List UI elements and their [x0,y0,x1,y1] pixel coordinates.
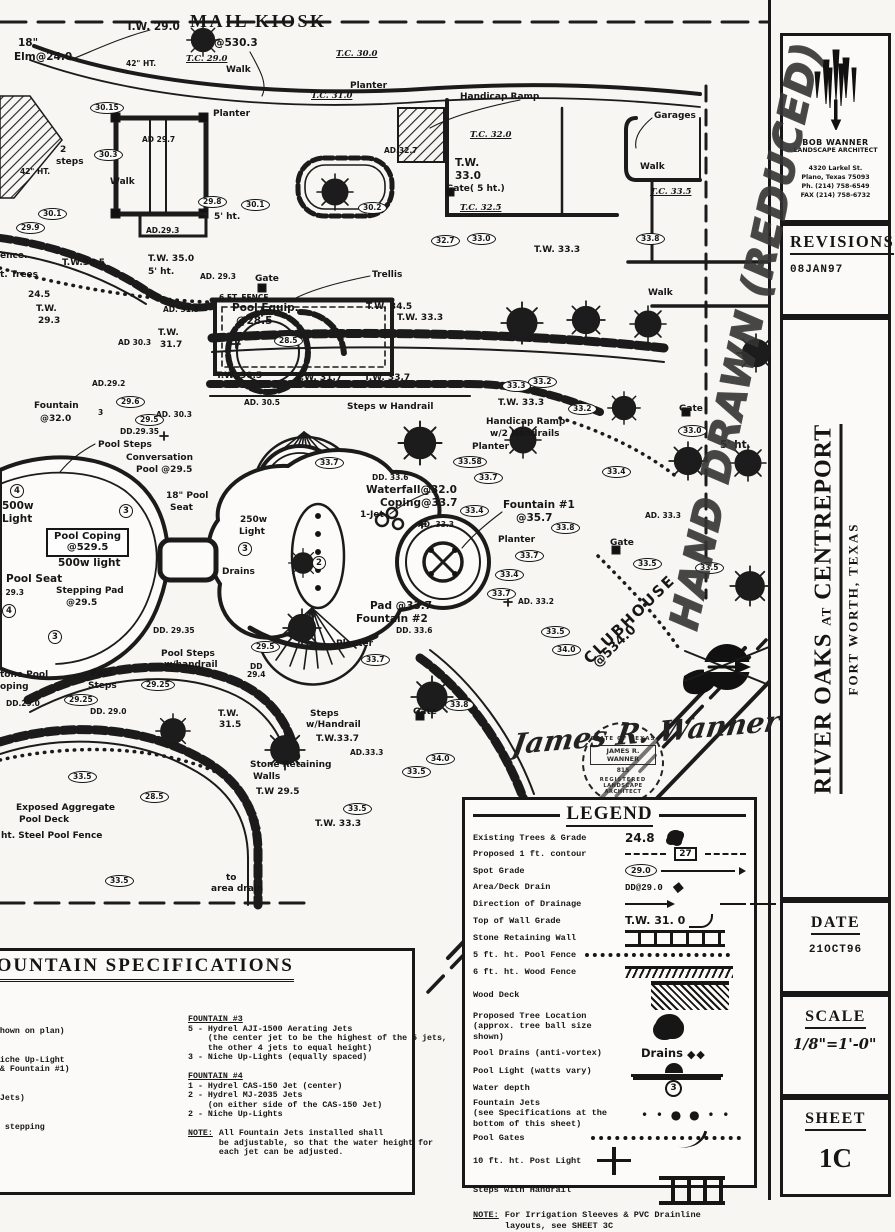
legend-item: Proposed 1 ft. contour27 [473,847,746,863]
legend-item-label: Pool Drains (anti-vortex) [473,1048,625,1059]
legend-item-label: Proposed 1 ft. contour [473,849,625,860]
legend-item-label: Top of Wall Grade [473,916,625,927]
legend-item-label: Area/Deck Drain [473,882,625,893]
legend-item-label: Steps with Handrail [473,1185,625,1196]
legend-item: Direction of Drainage [473,896,746,912]
dd-symbol: DD@29.0 [625,880,746,896]
fountain-specs-left-column: s shown on plan) - Niche Up-Light ad & F… [0,1027,70,1133]
drawing-sheet: T.W. 29.0MAIL KIOSK@530.3T.C. 29.0T.C. 3… [0,0,895,1200]
legend-item-label: Direction of Drainage [473,899,625,910]
legend-item: Wood Deck [473,981,746,1010]
poolfence-symbol [585,948,746,964]
treeloc-symbol [625,1011,746,1043]
legend-items: Existing Trees & Grade24.8Proposed 1 ft.… [473,830,746,1205]
legend-item-label: Spot Grade [473,866,625,877]
drainage-symbol [625,896,746,912]
sheet-box: SHEET 1C [780,1097,891,1197]
revisions-label: REVISIONS [790,232,894,255]
sheet-label: SHEET [805,1110,866,1131]
legend-item: Area/Deck DrainDD@29.0 [473,880,746,896]
legend-item-label: Pool Light (watts vary) [473,1066,625,1077]
woodfence-symbol [625,964,746,980]
legend-item-label: Fountain Jets (see Specifications at the… [473,1098,625,1130]
fountain-specs-title: FOUNTAIN SPECIFICATIONS [0,955,294,982]
legend-item: Top of Wall GradeT.W. 31. 0 [473,913,746,929]
wooddeck-symbol [625,981,746,1010]
project-title: RIVER OAKS AT CENTREPORT [810,423,842,793]
drains-symbol: Drains [625,1043,746,1062]
seal-number: 815 [584,767,662,774]
legend-note-head: NOTE: [473,1210,499,1232]
legend-item-label: Existing Trees & Grade [473,833,625,844]
fountain-specs-right-column: FOUNTAIN #3 5 - Hydrel AJI-1500 Aerating… [188,1015,447,1158]
legend-item: 5 ft. ht. Pool Fence [473,948,746,964]
seal-title: LANDSCAPE ARCHITECT [584,783,662,795]
fountain-specifications: FOUNTAIN SPECIFICATIONS s shown on plan)… [0,948,415,1195]
legend-note-text: For Irrigation Sleeves & PVC Drainline l… [505,1210,701,1232]
legend-item-label: Wood Deck [473,990,625,1001]
date-label: DATE [811,914,860,935]
legend-title-row: LEGEND [473,803,746,827]
tree-symbol: 24.8 [625,830,746,846]
legend-item: 10 ft. ht. Post Light [473,1147,746,1175]
legend-item: Pool Drains (anti-vortex)Drains [473,1043,746,1062]
contour-symbol: 27 [625,847,746,863]
legend-item-label: 6 ft. ht. Wood Fence [473,967,625,978]
legend-item: Pool Gates [473,1130,746,1146]
revisions-box: REVISIONS 08JAN97 [780,223,891,317]
revision-entry: 08JAN97 [790,264,881,276]
fountain3-heading: FOUNTAIN #3 [188,1015,447,1025]
poollight-symbol [625,1063,746,1079]
legend-item: Proposed Tree Location (approx. tree bal… [473,1011,746,1043]
legend-item: Fountain Jets (see Specifications at the… [473,1098,746,1130]
legend: LEGEND Existing Trees & Grade24.8Propose… [462,797,757,1188]
date-value: 21OCT96 [783,944,888,956]
tw-symbol: T.W. 31. 0 [625,913,746,929]
legend-item: Water depth3 [473,1080,746,1097]
steps-symbol [625,1176,746,1205]
scale-box: SCALE 1/8"=1'-0" [780,994,891,1097]
jets-symbol [625,1098,746,1130]
legend-item: Steps with Handrail [473,1176,746,1205]
gates-symbol [591,1130,746,1146]
legend-item: Pool Light (watts vary) [473,1063,746,1079]
legend-note: NOTE: For Irrigation Sleeves & PVC Drain… [473,1210,746,1232]
legend-item: Existing Trees & Grade24.8 [473,830,746,846]
depth-symbol: 3 [625,1080,746,1097]
legend-item: Spot Grade29.0 [473,863,746,879]
postlight-symbol [625,1147,746,1175]
legend-item: 6 ft. ht. Wood Fence [473,964,746,980]
legend-item: Stone Retaining Wall [473,930,746,947]
fountain-note-head: NOTE: [188,1129,213,1158]
project-title-box: RIVER OAKS AT CENTREPORT FORT WORTH, TEX… [780,317,891,900]
legend-item-label: Water depth [473,1083,625,1094]
sheet-number: 1C [783,1143,888,1174]
legend-item-label: Stone Retaining Wall [473,933,625,944]
scale-value: 1/8"=1'-0" [783,1036,888,1053]
legend-title: LEGEND [566,803,652,827]
spot-symbol: 29.0 [625,863,746,879]
date-box: DATE 21OCT96 [780,900,891,994]
fountain4-heading: FOUNTAIN #4 [188,1072,447,1082]
project-location: FORT WORTH, TEXAS [845,329,861,889]
scale-label: SCALE [805,1008,866,1029]
legend-item-label: Proposed Tree Location (approx. tree bal… [473,1011,625,1043]
wall-symbol [625,930,746,947]
fountain-note-text: All Fountain Jets installed shall be adj… [219,1129,433,1158]
